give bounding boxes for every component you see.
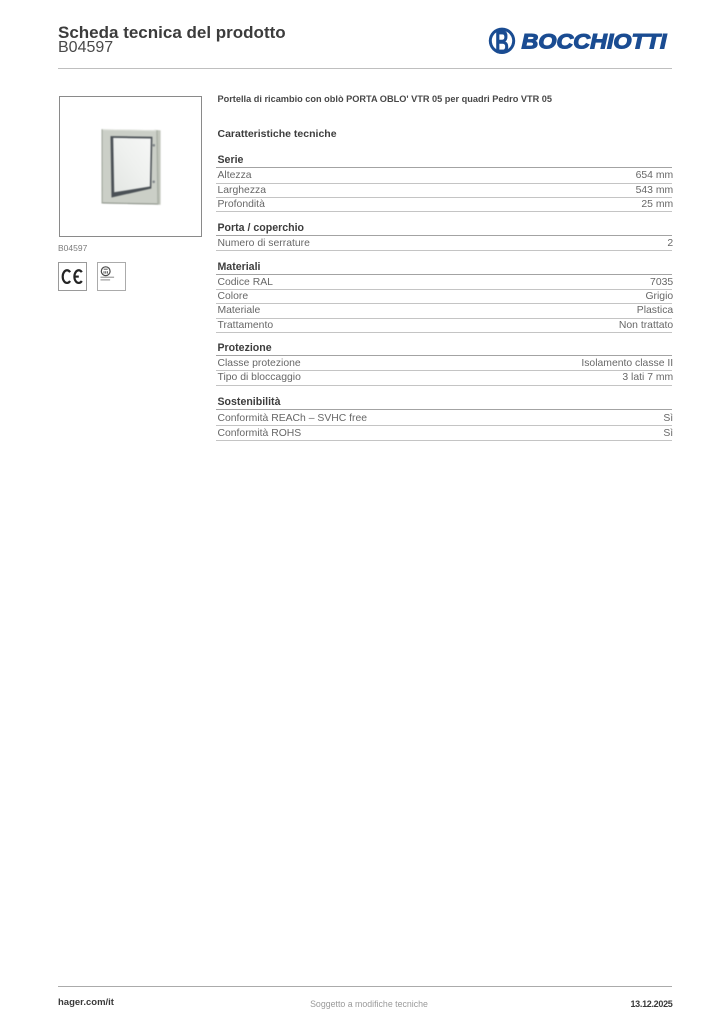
svg-text:BOCCHIOTTI: BOCCHIOTTI [522,30,668,53]
svg-text:B: B [495,25,509,57]
